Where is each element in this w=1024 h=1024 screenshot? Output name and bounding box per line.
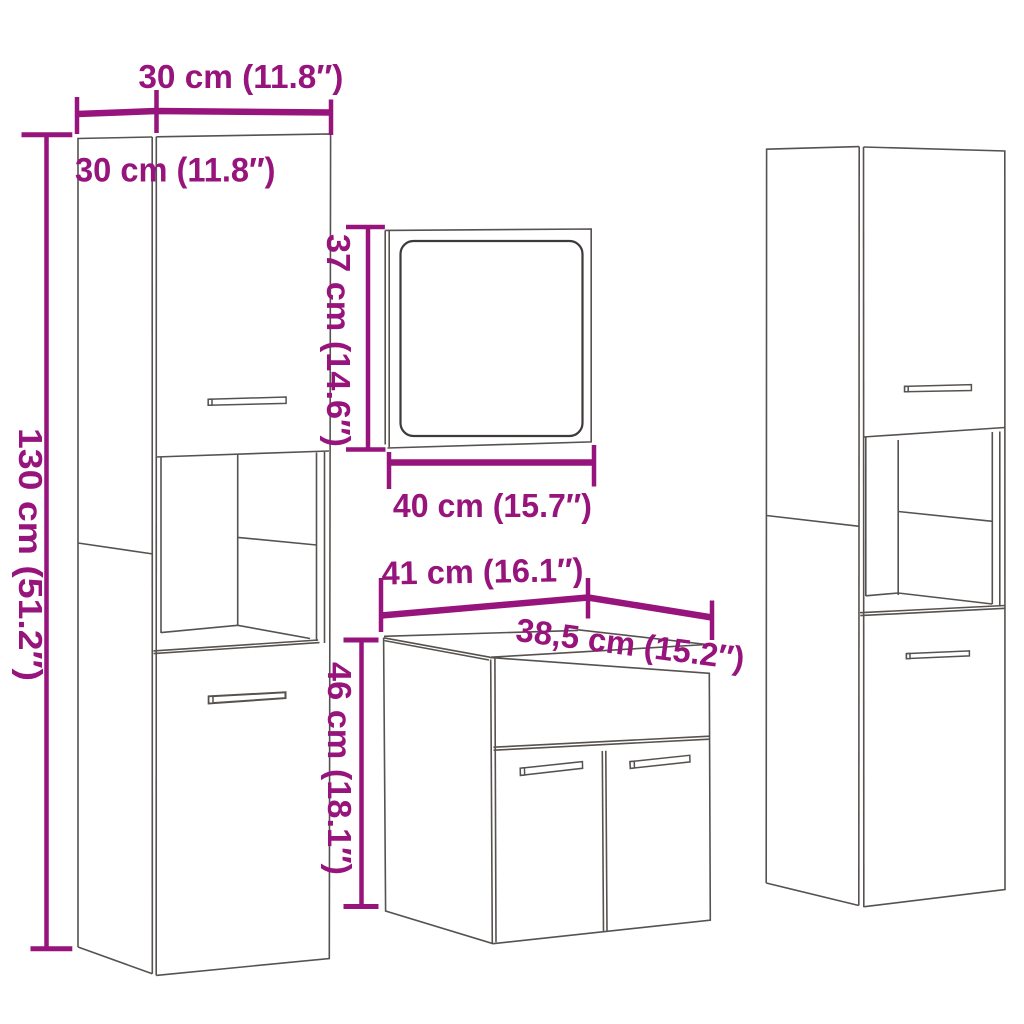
svg-text:37 cm (14.6″): 37 cm (14.6″): [320, 234, 357, 447]
svg-text:46 cm (18.1″): 46 cm (18.1″): [321, 662, 358, 875]
svg-text:40 cm (15.7″): 40 cm (15.7″): [393, 487, 592, 524]
svg-text:30 cm (11.8″): 30 cm (11.8″): [138, 58, 343, 95]
svg-text:41 cm (16.1″): 41 cm (16.1″): [381, 551, 584, 592]
svg-text:30 cm (11.8″): 30 cm (11.8″): [75, 152, 276, 190]
svg-text:130 cm (51.2″): 130 cm (51.2″): [12, 428, 49, 681]
